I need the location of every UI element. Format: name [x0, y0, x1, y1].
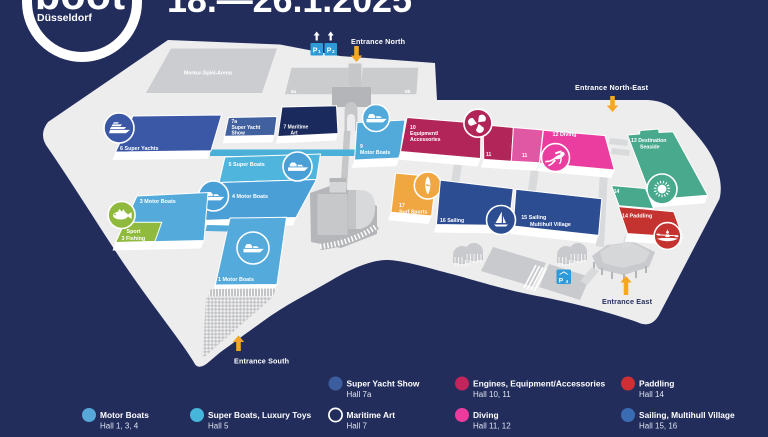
svg-text:11: 11 [522, 153, 528, 159]
svg-text:Merkur-Spiel-Arena: Merkur-Spiel-Arena [184, 71, 232, 77]
svg-text:14: 14 [614, 189, 620, 195]
svg-text:P: P [327, 48, 332, 55]
svg-text:Düsseldorf: Düsseldorf [37, 12, 92, 24]
svg-text:17: 17 [399, 203, 405, 209]
svg-text:Sailing, Multihull Village: Sailing, Multihull Village [639, 410, 735, 420]
svg-text:3 Fishing: 3 Fishing [122, 236, 146, 242]
svg-text:16 Sailing: 16 Sailing [440, 218, 464, 224]
svg-text:Multihull Village: Multihull Village [530, 222, 571, 228]
svg-text:Hall 1, 3, 4: Hall 1, 3, 4 [100, 422, 139, 431]
svg-text:Entrance East: Entrance East [602, 297, 653, 306]
svg-text:8a: 8a [291, 89, 297, 95]
svg-text:18.—26.1.2025: 18.—26.1.2025 [167, 0, 412, 20]
svg-text:Art: Art [291, 130, 299, 136]
svg-text:Diving: Diving [473, 410, 499, 420]
svg-text:Super Boats, Luxury Toys: Super Boats, Luxury Toys [208, 410, 311, 420]
svg-text:Hall 10, 11: Hall 10, 11 [473, 390, 511, 399]
svg-text:Sport: Sport [127, 229, 141, 235]
svg-text:12 Diving: 12 Diving [553, 132, 577, 138]
svg-text:1: 1 [318, 49, 321, 54]
svg-text:Seaside: Seaside [640, 145, 660, 151]
svg-text:Motor Boats: Motor Boats [100, 410, 149, 420]
svg-text:Paddling: Paddling [639, 379, 674, 389]
svg-text:Super Yacht Show: Super Yacht Show [347, 379, 420, 389]
svg-text:Entrance North: Entrance North [351, 37, 405, 46]
svg-text:13 Destination: 13 Destination [631, 138, 666, 144]
svg-text:15 Sailing: 15 Sailing [521, 215, 546, 221]
svg-text:5 Super Boats: 5 Super Boats [229, 162, 265, 168]
svg-text:Hall 15, 16: Hall 15, 16 [639, 422, 678, 431]
svg-text:Entrance North-East: Entrance North-East [575, 83, 649, 92]
svg-text:Hall 11, 12: Hall 11, 12 [473, 422, 511, 431]
svg-text:Hall 7a: Hall 7a [347, 390, 372, 399]
svg-text:11: 11 [486, 152, 492, 158]
svg-text:Hall 5: Hall 5 [208, 422, 229, 431]
svg-text:Maritime Art: Maritime Art [347, 410, 396, 420]
svg-text:Hall 14: Hall 14 [639, 390, 664, 399]
svg-text:14 Paddling: 14 Paddling [622, 214, 652, 220]
svg-text:8b: 8b [405, 89, 411, 95]
svg-text:4 Motor Boats: 4 Motor Boats [232, 194, 268, 200]
svg-text:P: P [559, 278, 564, 285]
svg-text:6 Super Yachts: 6 Super Yachts [120, 146, 159, 152]
svg-text:Surf Sports: Surf Sports [399, 210, 427, 216]
svg-text:Entrance South: Entrance South [234, 357, 289, 366]
svg-text:P: P [313, 48, 318, 55]
svg-text:Hall 7: Hall 7 [347, 422, 368, 431]
svg-text:2: 2 [332, 49, 335, 54]
svg-text:Motor Boats: Motor Boats [360, 150, 390, 156]
svg-text:Engines, Equipment/Accessories: Engines, Equipment/Accessories [473, 379, 606, 389]
svg-text:1 Motor Boats: 1 Motor Boats [218, 277, 254, 283]
svg-text:Accessories: Accessories [410, 137, 441, 143]
svg-text:3 Motor Boats: 3 Motor Boats [140, 199, 176, 205]
svg-text:Show: Show [232, 131, 245, 137]
